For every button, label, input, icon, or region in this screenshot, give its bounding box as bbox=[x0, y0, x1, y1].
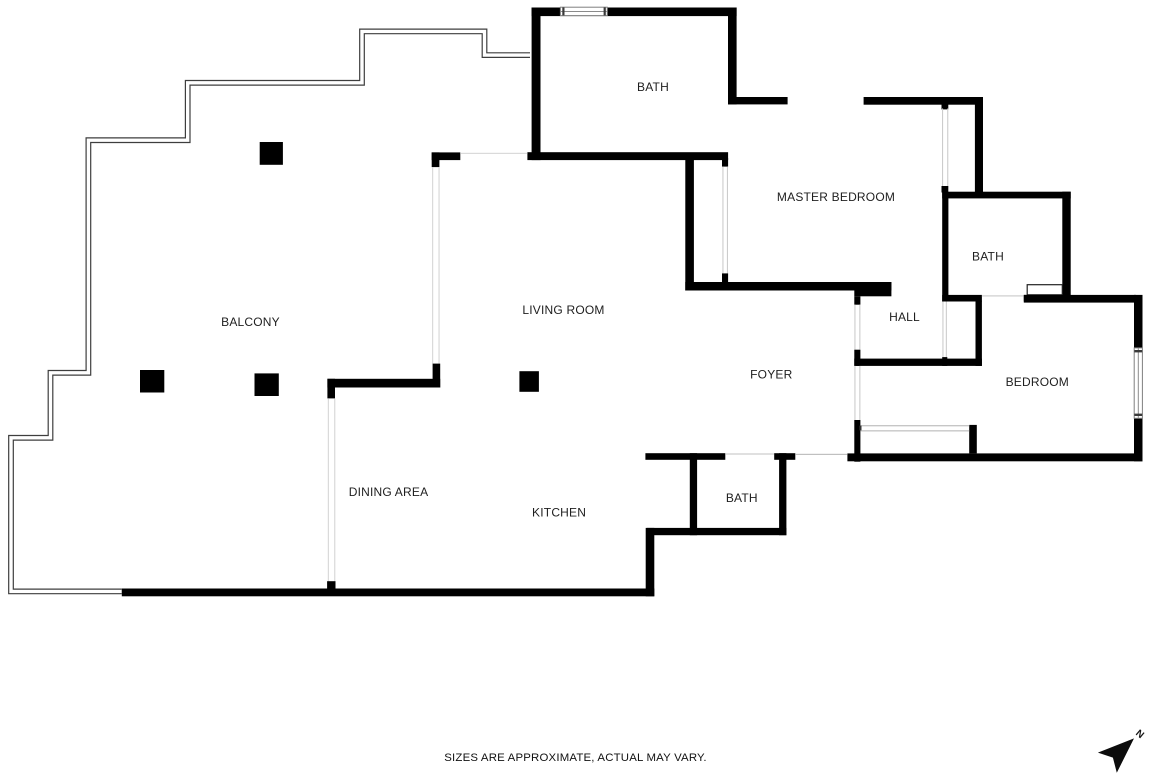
svg-text:BEDROOM: BEDROOM bbox=[1006, 375, 1069, 389]
svg-text:KITCHEN: KITCHEN bbox=[532, 506, 586, 520]
svg-text:BATH: BATH bbox=[726, 491, 758, 505]
svg-text:SIZES ARE APPROXIMATE, ACTUAL: SIZES ARE APPROXIMATE, ACTUAL MAY VARY. bbox=[444, 752, 706, 764]
svg-text:BALCONY: BALCONY bbox=[221, 315, 280, 329]
svg-text:DINING AREA: DINING AREA bbox=[349, 485, 429, 499]
svg-text:BATH: BATH bbox=[972, 250, 1004, 264]
svg-text:HALL: HALL bbox=[889, 310, 920, 324]
svg-text:FOYER: FOYER bbox=[750, 368, 792, 382]
svg-text:BATH: BATH bbox=[637, 80, 669, 94]
svg-text:LIVING ROOM: LIVING ROOM bbox=[522, 303, 604, 317]
svg-text:MASTER BEDROOM: MASTER BEDROOM bbox=[777, 190, 895, 204]
